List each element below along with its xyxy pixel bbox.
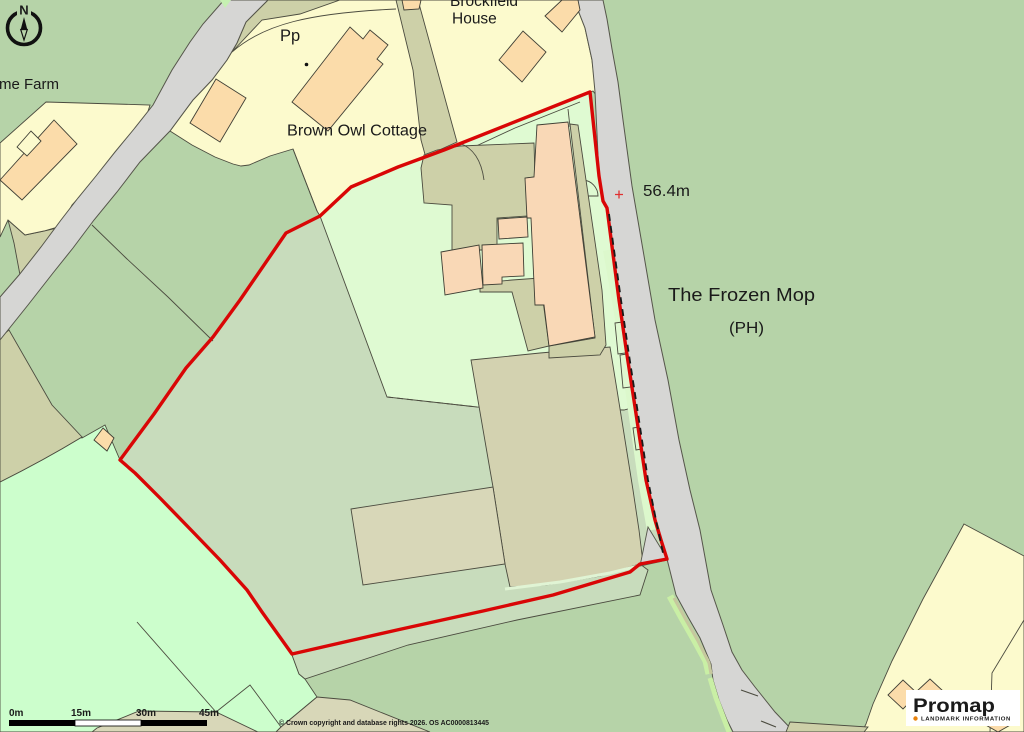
svg-text:Brown Owl Cottage: Brown Owl Cottage [287, 123, 427, 140]
svg-text:56.4m: 56.4m [643, 183, 690, 200]
svg-text:15m: 15m [71, 708, 91, 719]
svg-text:0m: 0m [9, 708, 24, 719]
svg-text:Brockfield: Brockfield [450, 0, 518, 10]
svg-text:me Farm: me Farm [0, 76, 59, 93]
svg-text:Promap: Promap [913, 695, 995, 717]
svg-text:Pp: Pp [280, 27, 300, 45]
svg-text:30m: 30m [136, 708, 156, 719]
svg-text:LANDMARK INFORMATION: LANDMARK INFORMATION [921, 717, 1011, 723]
svg-text:© Crown copyright and database: © Crown copyright and database rights 20… [279, 718, 489, 727]
svg-text:House: House [452, 11, 497, 28]
svg-text:N: N [19, 3, 28, 18]
svg-text:45m: 45m [199, 708, 219, 719]
svg-text:(PH): (PH) [729, 320, 764, 337]
svg-text:The Frozen Mop: The Frozen Mop [668, 285, 815, 305]
